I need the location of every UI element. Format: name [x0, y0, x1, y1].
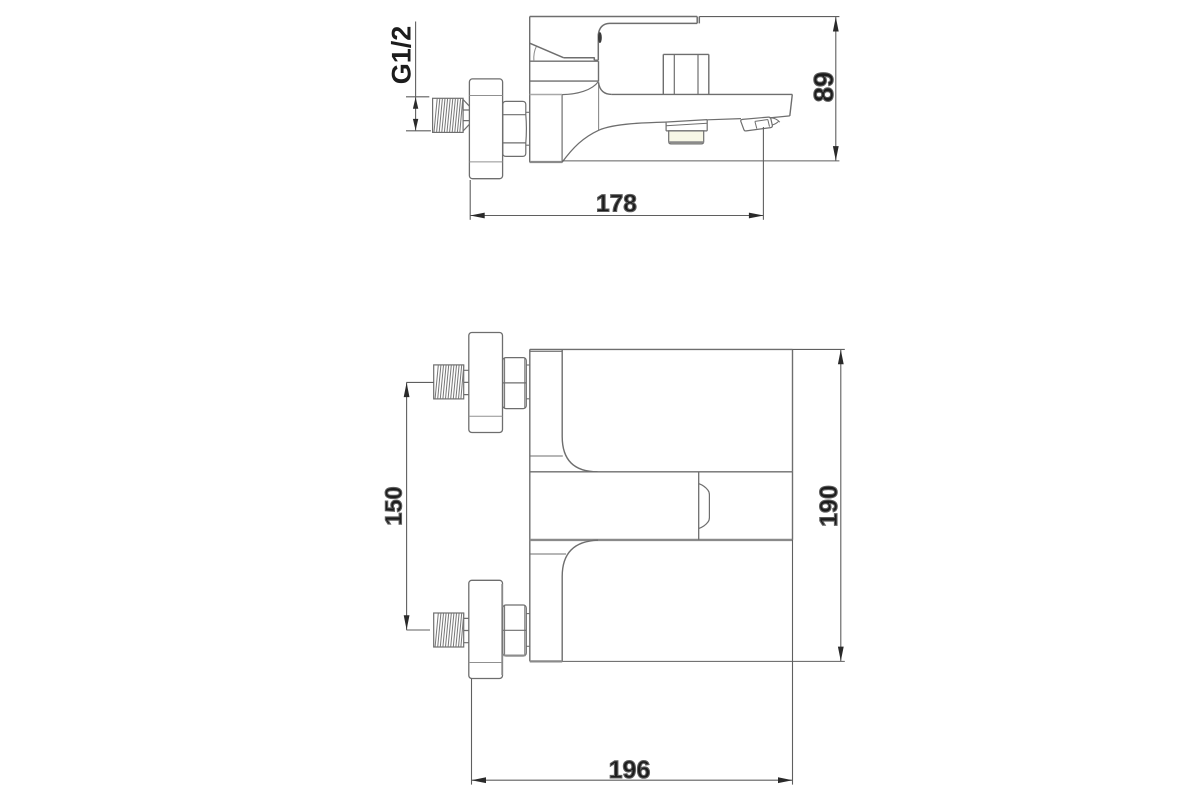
- svg-text:196: 196: [609, 756, 651, 784]
- svg-text:89: 89: [808, 72, 839, 103]
- svg-text:150: 150: [381, 486, 407, 525]
- svg-text:178: 178: [596, 191, 637, 218]
- svg-text:190: 190: [815, 485, 843, 527]
- svg-text:G1/2: G1/2: [387, 26, 417, 85]
